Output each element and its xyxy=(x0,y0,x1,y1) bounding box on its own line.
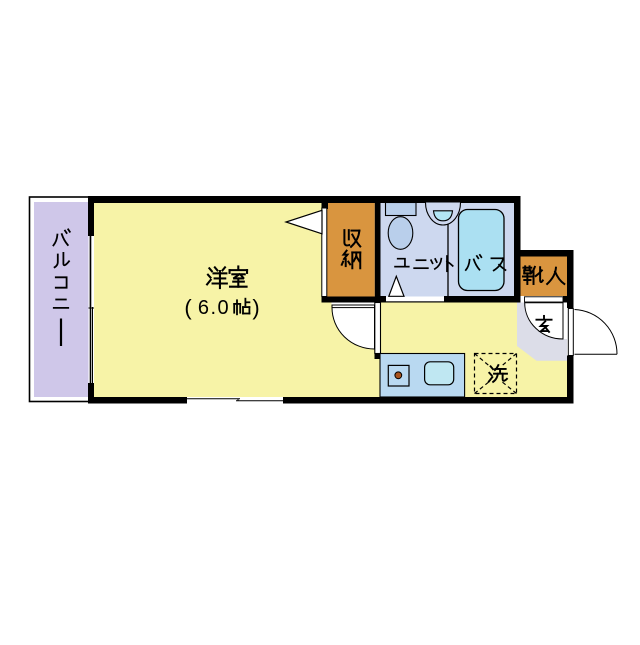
svg-text:): ) xyxy=(252,295,259,320)
svg-text:6.0: 6.0 xyxy=(198,297,230,319)
svg-text:(: ( xyxy=(184,295,192,320)
